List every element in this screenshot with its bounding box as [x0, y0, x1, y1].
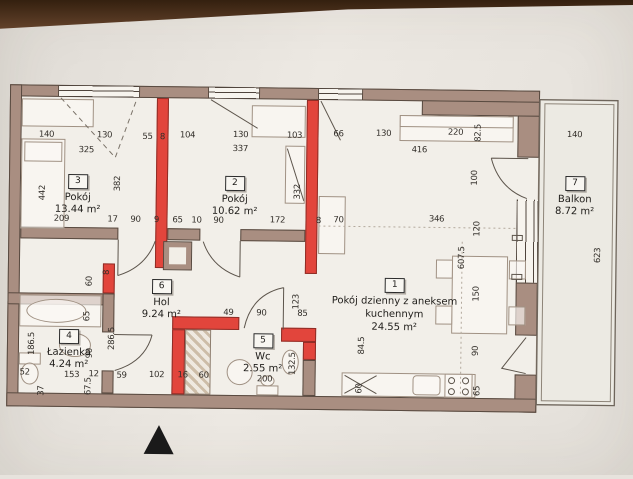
dimension-label: 10: [191, 215, 201, 225]
dimension-label: 90: [471, 346, 481, 356]
dimension-label: 346: [429, 214, 444, 224]
dimension-label: 60: [354, 383, 364, 393]
dimension-label: 416: [412, 145, 427, 155]
dimension-label: 140: [567, 130, 582, 140]
dimension-label: 65: [472, 386, 482, 396]
room-number-badge: 1: [385, 278, 405, 293]
room-number-badge: 2: [225, 176, 245, 191]
photo-background: 1401305583251041301033376613022082.54161…: [0, 0, 633, 475]
dimension-label: 8: [102, 270, 112, 275]
room-area: 8.72 m²: [555, 206, 594, 217]
room-label-5: 5Wc2.55 m²: [243, 333, 283, 374]
dimension-label: 84.5: [357, 337, 367, 355]
dimension-label: 8: [160, 132, 165, 142]
dimension-label: 90: [130, 215, 140, 225]
room-name: Pokój: [65, 192, 91, 203]
dimension-label: 59: [116, 371, 126, 381]
room-number-badge: 7: [565, 176, 585, 191]
dimension-label: 9: [154, 215, 159, 225]
dimension-label: 200: [257, 374, 272, 384]
room-label-3: 3Pokój13.44 m²: [55, 174, 101, 216]
dimension-label: 209: [54, 214, 69, 224]
dimension-label: 120: [472, 221, 482, 236]
north-arrow-icon: [144, 425, 174, 454]
dimension-label: 337: [233, 144, 248, 154]
dimension-label: 17: [107, 214, 117, 224]
room-area: 13.44 m²: [55, 204, 101, 216]
dimension-label: 60: [198, 371, 208, 381]
dimension-label: 153: [64, 370, 79, 380]
dimension-label: 172: [270, 215, 285, 225]
dimension-label: 130: [233, 130, 248, 140]
room-number-badge: 6: [152, 279, 172, 294]
room-area: 9.24 m²: [142, 309, 181, 320]
room-label-6: 6Hol9.24 m²: [142, 279, 182, 320]
dimension-label: 82.5: [473, 124, 483, 142]
dimension-label: 49: [223, 308, 233, 318]
dimension-label: 65: [82, 311, 92, 321]
floor-plan: 1401305583251041301033376613022082.54161…: [0, 0, 633, 479]
room-name: Wc: [255, 351, 271, 362]
dimension-label: 100: [470, 170, 480, 185]
room-number-badge: 5: [253, 333, 273, 348]
room-label-7: 7Balkon8.72 m²: [555, 176, 595, 217]
dimension-label: 12: [88, 369, 98, 379]
dimension-label: 104: [180, 130, 195, 140]
dimension-label: 286.5: [107, 327, 117, 350]
dimension-label: 90: [256, 308, 266, 318]
dimension-label: 66: [333, 129, 343, 139]
dimension-label: 140: [39, 130, 54, 140]
dimension-label: 85: [297, 309, 307, 319]
dimension-label: 60: [85, 276, 95, 286]
room-area: 10.62 m²: [212, 206, 258, 218]
room-number-badge: 3: [68, 174, 88, 189]
dimension-label: 150: [472, 286, 482, 301]
dimension-label: 325: [79, 145, 94, 155]
dimension-label: 55: [142, 132, 152, 142]
room-name: Balkon: [558, 194, 592, 205]
dimension-label: 382: [113, 176, 123, 191]
dimension-label: 37: [36, 385, 46, 395]
dimension-label: 102: [149, 370, 164, 380]
room-name: Pokój: [222, 194, 248, 205]
dimension-label: 442: [38, 185, 48, 200]
dimension-label: 607.5: [457, 246, 467, 269]
room-name: Łazienka: [47, 347, 91, 359]
dimension-label: 70: [333, 215, 343, 225]
dimension-label: 103: [287, 131, 302, 141]
dimension-label: 65: [172, 215, 182, 225]
dimension-label: 130: [97, 130, 112, 140]
dimension-label: 130: [376, 129, 391, 139]
room-area: 24.55 m²: [371, 322, 417, 334]
dimension-label: 332: [293, 184, 303, 199]
room-label-2: 2Pokój10.62 m²: [212, 176, 258, 218]
room-label-1: 1Pokój dzienny z aneksem kuchennym24.55 …: [324, 277, 465, 334]
dimension-label: 16: [177, 370, 187, 380]
dimension-label: 220: [448, 128, 463, 138]
room-name: Pokój dzienny z aneksem kuchennym: [324, 295, 464, 322]
room-number-badge: 4: [59, 329, 79, 344]
room-label-4: 4Łazienka4.24 m²: [47, 329, 92, 371]
dimension-label: 123: [291, 294, 301, 309]
dimension-label: 52: [19, 367, 29, 377]
room-area: 4.24 m²: [49, 359, 88, 370]
dimension-label: 623: [593, 248, 603, 263]
dimension-label: 186.5: [27, 332, 37, 355]
dimension-label: 8: [316, 216, 321, 226]
plan-linework: [0, 0, 633, 479]
dimension-label: 132.5: [288, 352, 298, 375]
room-name: Hol: [153, 297, 170, 308]
dimension-label: 67.5: [83, 377, 93, 395]
room-area: 2.55 m²: [243, 363, 282, 374]
dimension-label: 90: [213, 216, 223, 226]
